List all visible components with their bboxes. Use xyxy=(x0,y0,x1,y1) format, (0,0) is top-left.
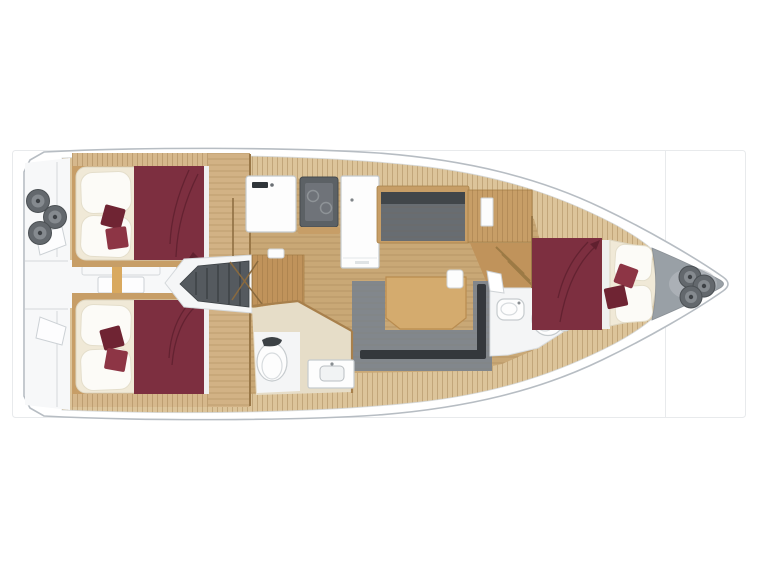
settee-seat-texture xyxy=(381,204,465,241)
winch-center xyxy=(38,231,42,235)
winch-center xyxy=(689,295,693,299)
winch-center xyxy=(53,215,57,219)
winch-center xyxy=(36,199,40,203)
vanity-basin xyxy=(320,366,344,381)
stove-top xyxy=(305,183,333,221)
berth-blanket xyxy=(532,238,602,330)
settee-backrest xyxy=(381,192,465,204)
fridge-unit xyxy=(341,176,379,268)
berth-blanket xyxy=(134,166,204,260)
companionway-latch xyxy=(268,249,284,258)
aft-cabin-port xyxy=(72,153,250,267)
fwd-head-door xyxy=(487,271,504,293)
wardrobe-door xyxy=(481,198,493,226)
cabin-walkway-planks xyxy=(208,153,250,267)
galley-sink xyxy=(252,182,268,188)
table-cup-holder xyxy=(447,270,463,288)
stove-rim xyxy=(298,227,340,234)
berth-side-edge xyxy=(204,166,209,260)
fridge-vent xyxy=(355,261,369,264)
yacht-deck-plan xyxy=(0,0,768,576)
berth-side-edge xyxy=(204,300,209,394)
settee-starboard xyxy=(377,186,469,243)
toilet xyxy=(257,343,287,381)
sofa-backrest-bottom xyxy=(360,350,486,359)
wardrobe-top-grain xyxy=(468,190,532,242)
boat-plan-page xyxy=(0,0,768,576)
winch-center xyxy=(688,275,692,279)
engine-box-grain xyxy=(252,255,304,307)
accent-cushion-dark xyxy=(604,285,629,310)
berth-blanket xyxy=(134,300,204,394)
accent-cushion-bright xyxy=(104,348,128,372)
washbasin-faucet xyxy=(518,302,521,305)
galley-faucet xyxy=(270,183,274,187)
winch-center xyxy=(702,284,706,288)
vanity-faucet xyxy=(330,362,333,365)
sofa-backrest-right xyxy=(477,284,486,358)
fridge-handle xyxy=(350,198,353,201)
berth-side-edge xyxy=(602,240,610,329)
accent-cushion-bright xyxy=(105,226,129,250)
